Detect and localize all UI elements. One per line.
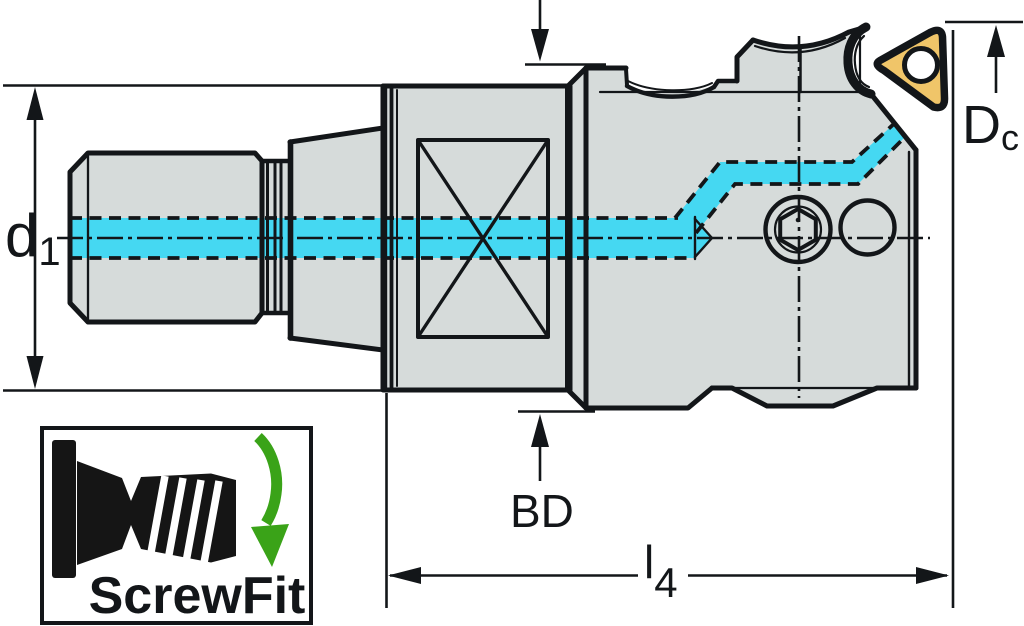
bd-label: BD	[510, 485, 574, 537]
screwfit-label: ScrewFit	[89, 567, 306, 625]
d1-arrow-down	[27, 356, 44, 389]
d1-label: d1	[5, 202, 61, 274]
l4-arrow-right	[916, 567, 949, 584]
dc-label: Dc	[962, 95, 1019, 158]
screwfit-badge: ScrewFit	[42, 428, 311, 625]
bd-arrow-up	[531, 414, 549, 447]
l4-arrow-left	[388, 567, 421, 584]
recess-left-wall	[626, 69, 627, 85]
d1-arrow-up	[27, 87, 44, 120]
boring-tool-technical-drawing: d1 BD Dc l4	[0, 0, 1024, 626]
tool-drawing-canvas: d1 BD Dc l4	[0, 0, 1024, 626]
bd-arrow-down	[531, 29, 549, 62]
screw-center-dot	[796, 218, 801, 223]
l4-label: l4	[644, 536, 678, 606]
cutting-insert	[877, 30, 944, 107]
recess-rim	[628, 81, 712, 90]
dimension-dc: Dc	[945, 22, 1023, 158]
insert-hole	[905, 49, 938, 82]
dc-arrow-up	[987, 25, 1005, 57]
